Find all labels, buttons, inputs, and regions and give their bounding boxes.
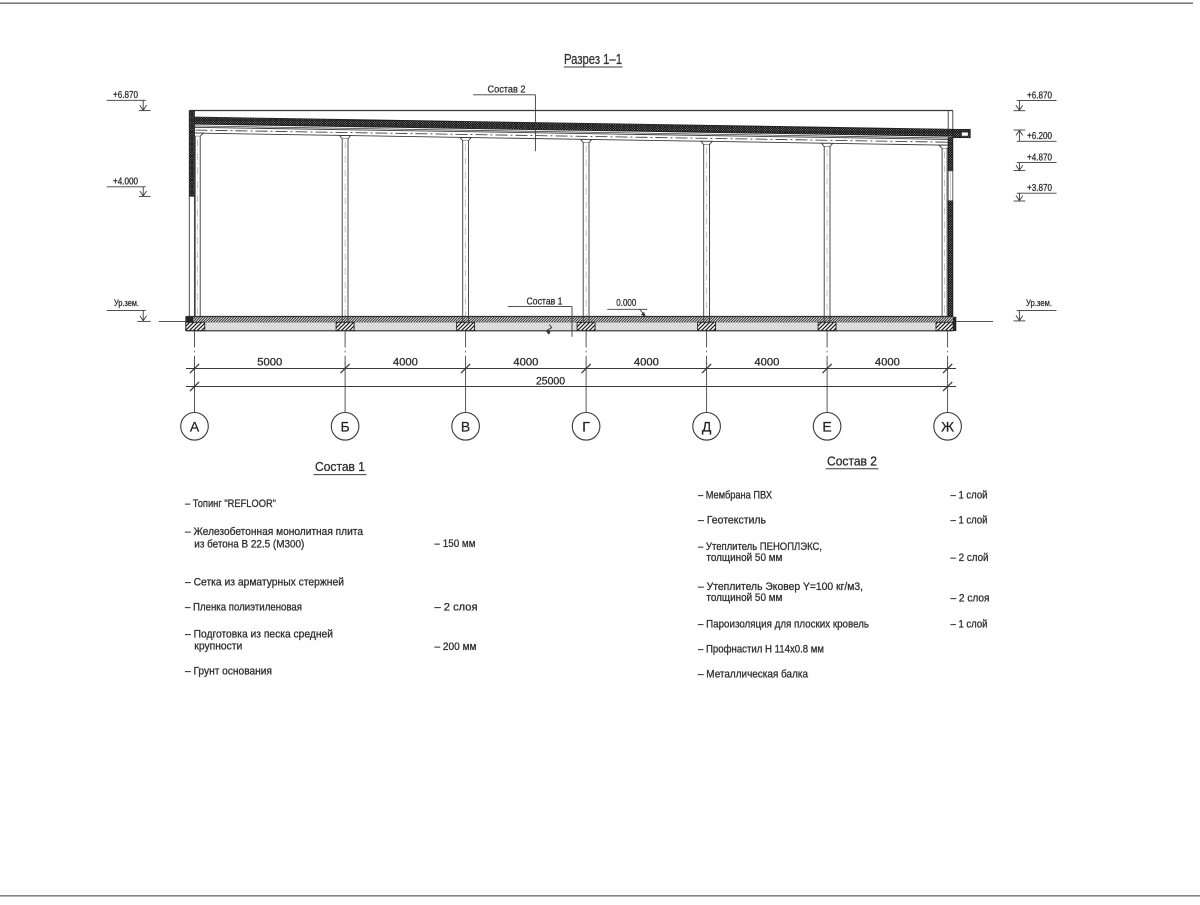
svg-text:толщиной 50 мм: толщиной 50 мм [706, 592, 782, 604]
svg-text:– 150 мм: – 150 мм [435, 538, 476, 550]
svg-text:4000: 4000 [513, 356, 538, 368]
svg-text:Е: Е [822, 418, 831, 434]
svg-text:Разрез 1–1: Разрез 1–1 [564, 51, 622, 68]
svg-text:– 2 слой: – 2 слой [951, 552, 989, 564]
svg-text:Состав 2: Состав 2 [827, 453, 877, 468]
svg-text:+4.870: +4.870 [1027, 152, 1052, 163]
svg-text:4000: 4000 [393, 356, 418, 368]
svg-text:– 2 слоя: – 2 слоя [435, 602, 478, 614]
svg-text:25000: 25000 [536, 375, 565, 387]
svg-text:4000: 4000 [875, 356, 900, 368]
svg-text:– Металлическая балка: – Металлическая балка [698, 668, 808, 680]
svg-text:– Подготовка из песка средней: – Подготовка из песка средней [185, 628, 333, 640]
svg-text:толщиной 50 мм: толщиной 50 мм [706, 552, 782, 564]
svg-text:Ур.зем.: Ур.зем. [1026, 297, 1052, 308]
svg-text:А: А [190, 418, 200, 434]
svg-text:– Геотекстиль: – Геотекстиль [698, 514, 766, 526]
svg-text:Г: Г [582, 418, 590, 434]
svg-text:– Сетка из арматурных стержней: – Сетка из арматурных стержней [185, 576, 344, 588]
svg-text:+6.870: +6.870 [113, 90, 138, 101]
svg-text:– Грунт основания: – Грунт основания [185, 665, 272, 677]
svg-text:– 200 мм: – 200 мм [435, 641, 477, 653]
svg-text:– 2 слоя: – 2 слоя [951, 593, 990, 605]
svg-text:+4.000: +4.000 [113, 177, 138, 188]
svg-text:4000: 4000 [754, 356, 779, 368]
svg-text:из бетона В 22.5 (М300): из бетона В 22.5 (М300) [194, 538, 304, 550]
svg-text:– 1 слой: – 1 слой [951, 618, 988, 630]
svg-text:– Железобетонная монолитная п: – Железобетонная монолитная плита [185, 526, 363, 538]
svg-text:– Утеплитель Эковер Y=100 кг/м: – Утеплитель Эковер Y=100 кг/м3, [698, 581, 863, 593]
svg-text:В: В [461, 418, 470, 434]
svg-text:– Пароизоляция для плоских кро: – Пароизоляция для плоских кровель [698, 618, 869, 630]
svg-text:Б: Б [341, 418, 350, 434]
svg-text:Ж: Ж [941, 418, 954, 434]
svg-text:+6.200: +6.200 [1027, 131, 1052, 142]
svg-text:Д: Д [702, 418, 712, 434]
svg-text:– Пленка полиэтиленовая: – Пленка полиэтиленовая [185, 601, 302, 613]
svg-text:– 1 слой: – 1 слой [951, 489, 988, 501]
svg-text:Состав 1: Состав 1 [315, 459, 365, 474]
svg-text:4000: 4000 [634, 356, 659, 368]
svg-text:– Топинг "REFLOOR": – Топинг "REFLOOR" [185, 498, 276, 510]
svg-text:Ур.зем.: Ур.зем. [114, 297, 139, 308]
svg-text:Состав 2: Состав 2 [488, 85, 526, 96]
svg-text:– Мембрана ПВХ: – Мембрана ПВХ [698, 489, 772, 501]
svg-text:0.000: 0.000 [616, 298, 636, 309]
svg-text:+3.870: +3.870 [1027, 183, 1052, 194]
svg-text:крупности: крупности [194, 640, 242, 652]
svg-text:– Профнастил Н 114х0.8 мм: – Профнастил Н 114х0.8 мм [698, 643, 824, 655]
svg-text:– 1 слой: – 1 слой [951, 514, 988, 526]
svg-text:5000: 5000 [257, 356, 282, 368]
svg-text:Состав 1: Состав 1 [527, 296, 563, 307]
svg-text:+6.870: +6.870 [1027, 90, 1052, 101]
